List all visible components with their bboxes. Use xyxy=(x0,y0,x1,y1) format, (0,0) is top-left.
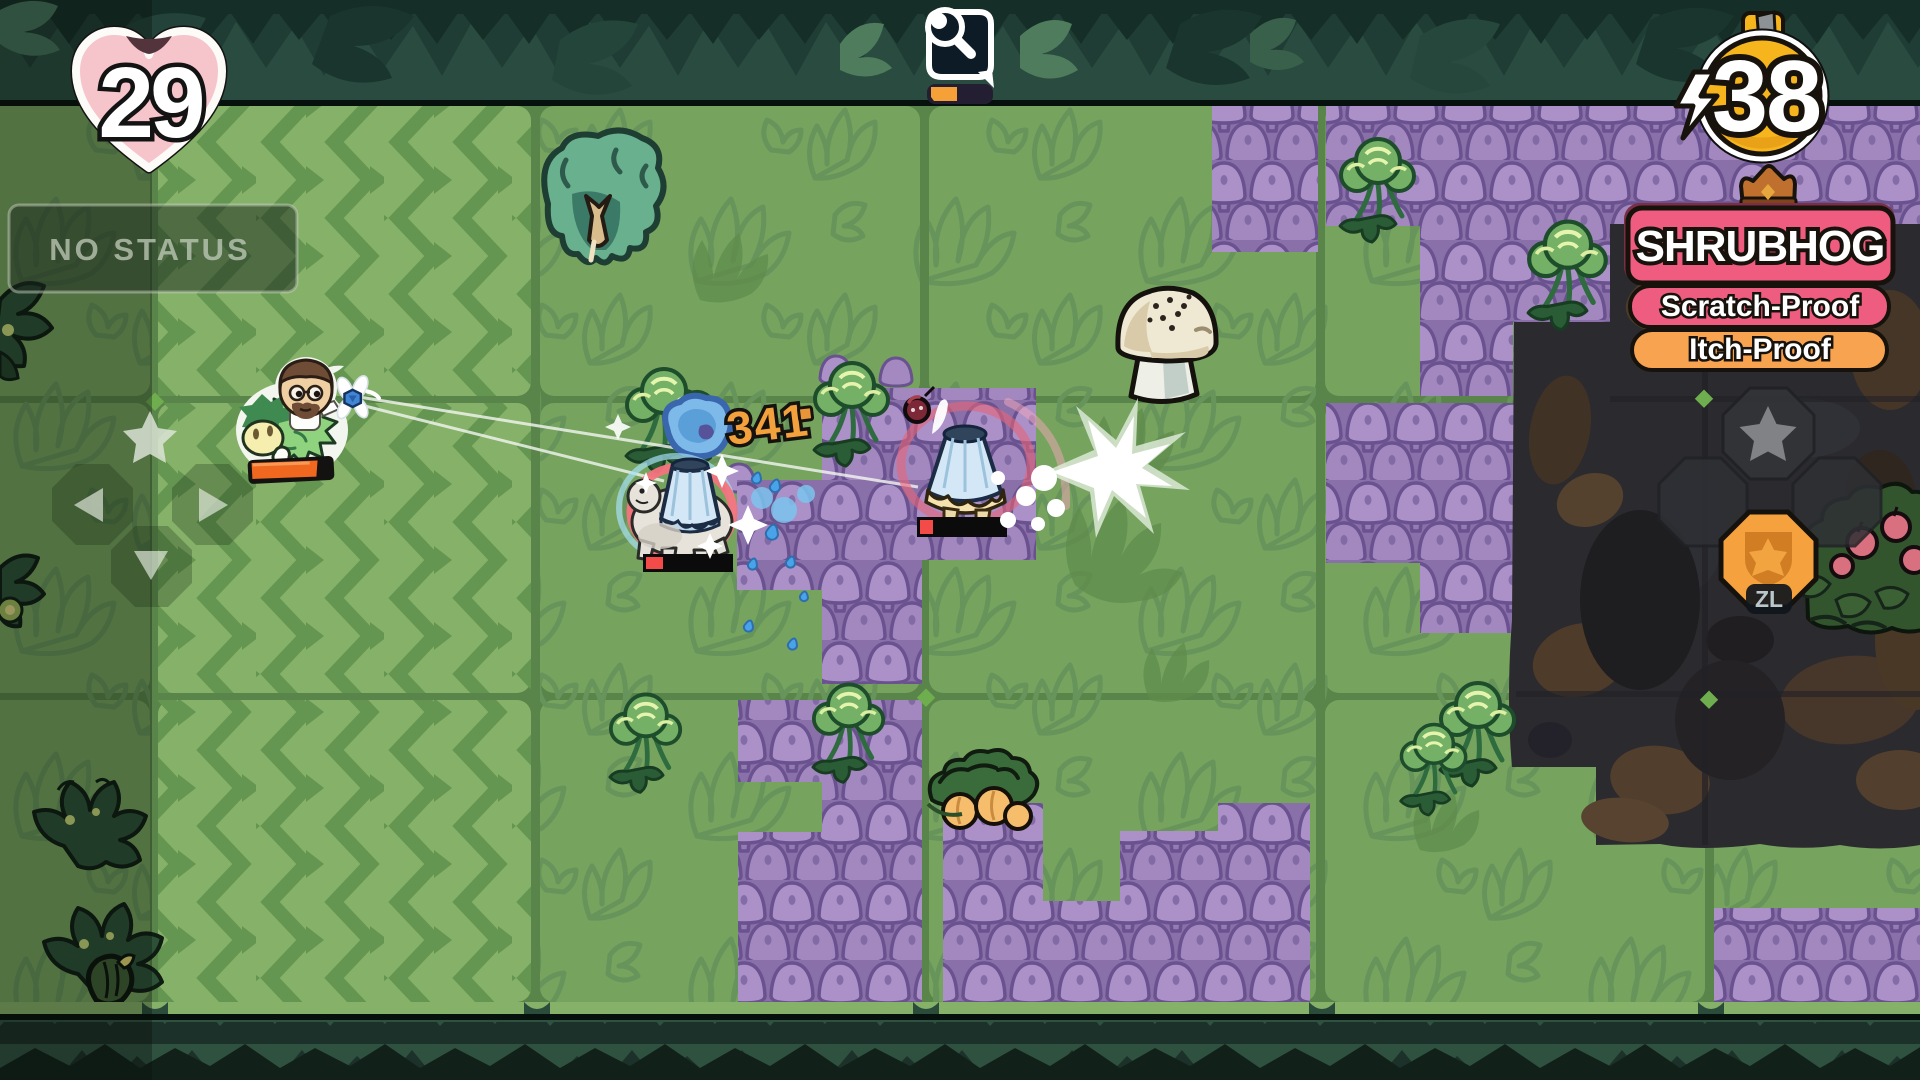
svg-text:SHRUBHOG: SHRUBHOG xyxy=(1636,222,1885,271)
svg-text:Scratch-Proof: Scratch-Proof xyxy=(1661,290,1860,323)
svg-text:ZL: ZL xyxy=(1755,586,1783,612)
svg-text:38: 38 xyxy=(1712,41,1820,153)
svg-text:341: 341 xyxy=(724,393,812,455)
svg-text:NO STATUS: NO STATUS xyxy=(49,232,251,267)
svg-text:Itch-Proof: Itch-Proof xyxy=(1689,333,1832,366)
svg-text:29: 29 xyxy=(98,47,202,159)
